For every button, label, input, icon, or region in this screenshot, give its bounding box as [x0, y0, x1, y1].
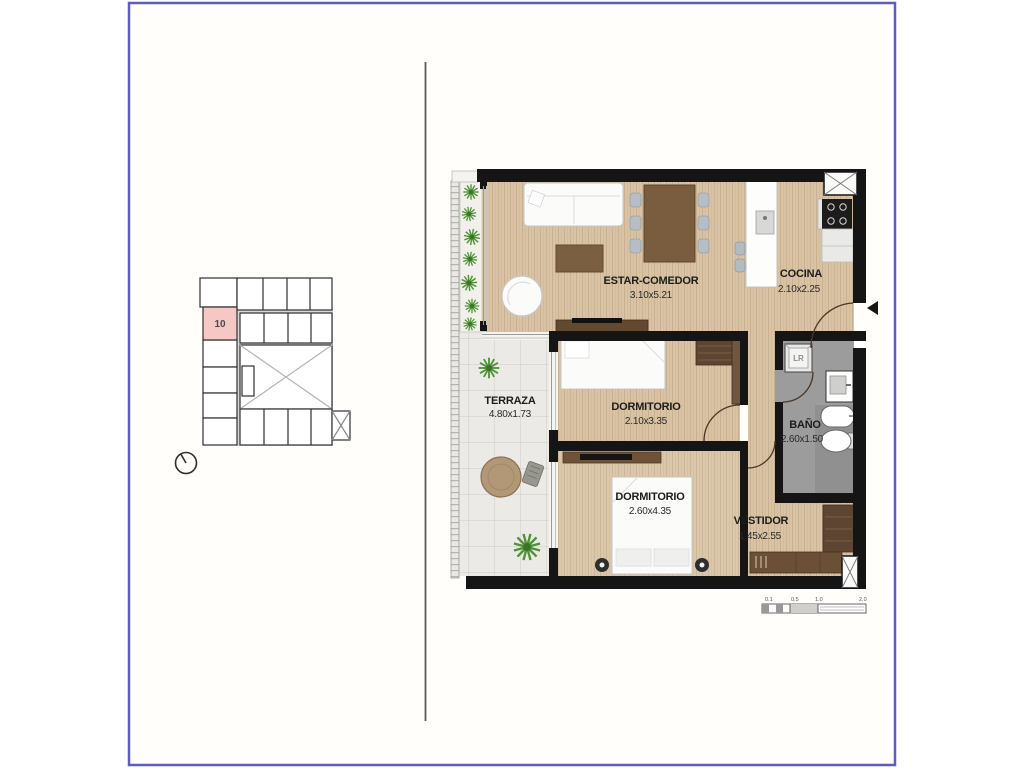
bedroom1-window — [549, 352, 558, 430]
dining-chair — [630, 239, 641, 253]
balcony-ledge — [452, 171, 478, 182]
room-label-vestidor: VESTIDOR — [734, 515, 789, 527]
pillow — [616, 549, 651, 566]
room-label-cocina: COCINA — [780, 268, 822, 280]
dining-chair — [630, 193, 641, 207]
island-sink — [756, 211, 774, 234]
room-label-terraza: TERRAZA — [484, 395, 535, 407]
coffee-table — [556, 245, 603, 272]
unit-number-label: 10 — [214, 319, 226, 330]
key-plan — [200, 278, 350, 446]
stove-icon — [818, 199, 852, 229]
scale-tick: 0.1 — [765, 597, 773, 603]
room-dims-vestidor: 1.45x2.55 — [739, 531, 782, 542]
key-plan-cell — [203, 367, 237, 393]
room-label-estar-comedor: ESTAR-COMEDOR — [604, 275, 699, 287]
terrace-floor — [458, 332, 555, 576]
key-plan-cell — [200, 278, 237, 307]
closet — [823, 505, 854, 552]
bedroom2-window — [549, 462, 558, 548]
dining-chair — [698, 239, 709, 253]
bed-single — [561, 338, 665, 389]
armchair — [502, 276, 542, 316]
kitchen-counter — [822, 229, 853, 262]
room-dims-bano: 2.60x1.50 — [781, 434, 824, 445]
scale-tick: 1.0 — [815, 597, 823, 603]
bar-stool — [735, 259, 745, 272]
toilet — [821, 430, 854, 452]
key-plan-cell — [203, 418, 237, 445]
plan-canvas: 10 — [0, 0, 1024, 768]
key-plan-row — [240, 409, 332, 445]
bathroom-sink — [826, 371, 853, 402]
main-floor-plan: LR — [451, 169, 878, 589]
north-arrow-icon — [176, 453, 197, 474]
key-plan-cell — [203, 340, 237, 367]
drawer-unit — [750, 552, 842, 573]
room-label-dormitorio2: DORMITORIO — [615, 491, 685, 503]
terrace-slider — [482, 332, 549, 340]
room-label-bano: BAÑO — [789, 418, 821, 431]
room-dims-estar-comedor: 3.10x5.21 — [630, 290, 673, 301]
sofa — [524, 183, 623, 226]
key-plan-top-row — [237, 278, 332, 310]
scale-tick: 0.5 — [791, 597, 799, 603]
dining-table — [644, 185, 695, 262]
tv-console — [556, 318, 648, 332]
tv — [580, 454, 632, 460]
pillow — [654, 549, 689, 566]
dining-chair — [630, 216, 641, 230]
dining-chair — [698, 216, 709, 230]
key-plan-cell — [203, 393, 237, 418]
terrace-railing — [451, 181, 459, 578]
kitchen-island — [746, 181, 777, 287]
dining-chair — [698, 193, 709, 207]
room-dims-terraza: 4.80x1.73 — [489, 409, 532, 420]
tv — [572, 318, 622, 323]
shaft-x-icon — [842, 556, 858, 588]
key-plan-shaft — [332, 411, 350, 440]
room-dims-cocina: 2.10x2.25 — [778, 284, 821, 295]
floor-plan-page: 10 — [0, 0, 1024, 768]
room-label-dormitorio1: DORMITORIO — [611, 401, 681, 413]
shaft-x-icon — [824, 172, 857, 195]
room-dims-dormitorio1: 2.10x3.35 — [625, 416, 668, 427]
dresser — [563, 452, 661, 463]
hall-floor — [748, 332, 775, 503]
key-plan-row — [240, 313, 332, 343]
key-plan-courtyard — [240, 345, 332, 409]
laundry-label: LR — [793, 354, 804, 363]
pillow — [565, 341, 589, 358]
terrace-table — [481, 457, 521, 497]
scale-tick: 2.0 — [859, 597, 867, 603]
room-dims-dormitorio2: 2.60x4.35 — [629, 506, 672, 517]
bar-stool — [735, 242, 745, 255]
